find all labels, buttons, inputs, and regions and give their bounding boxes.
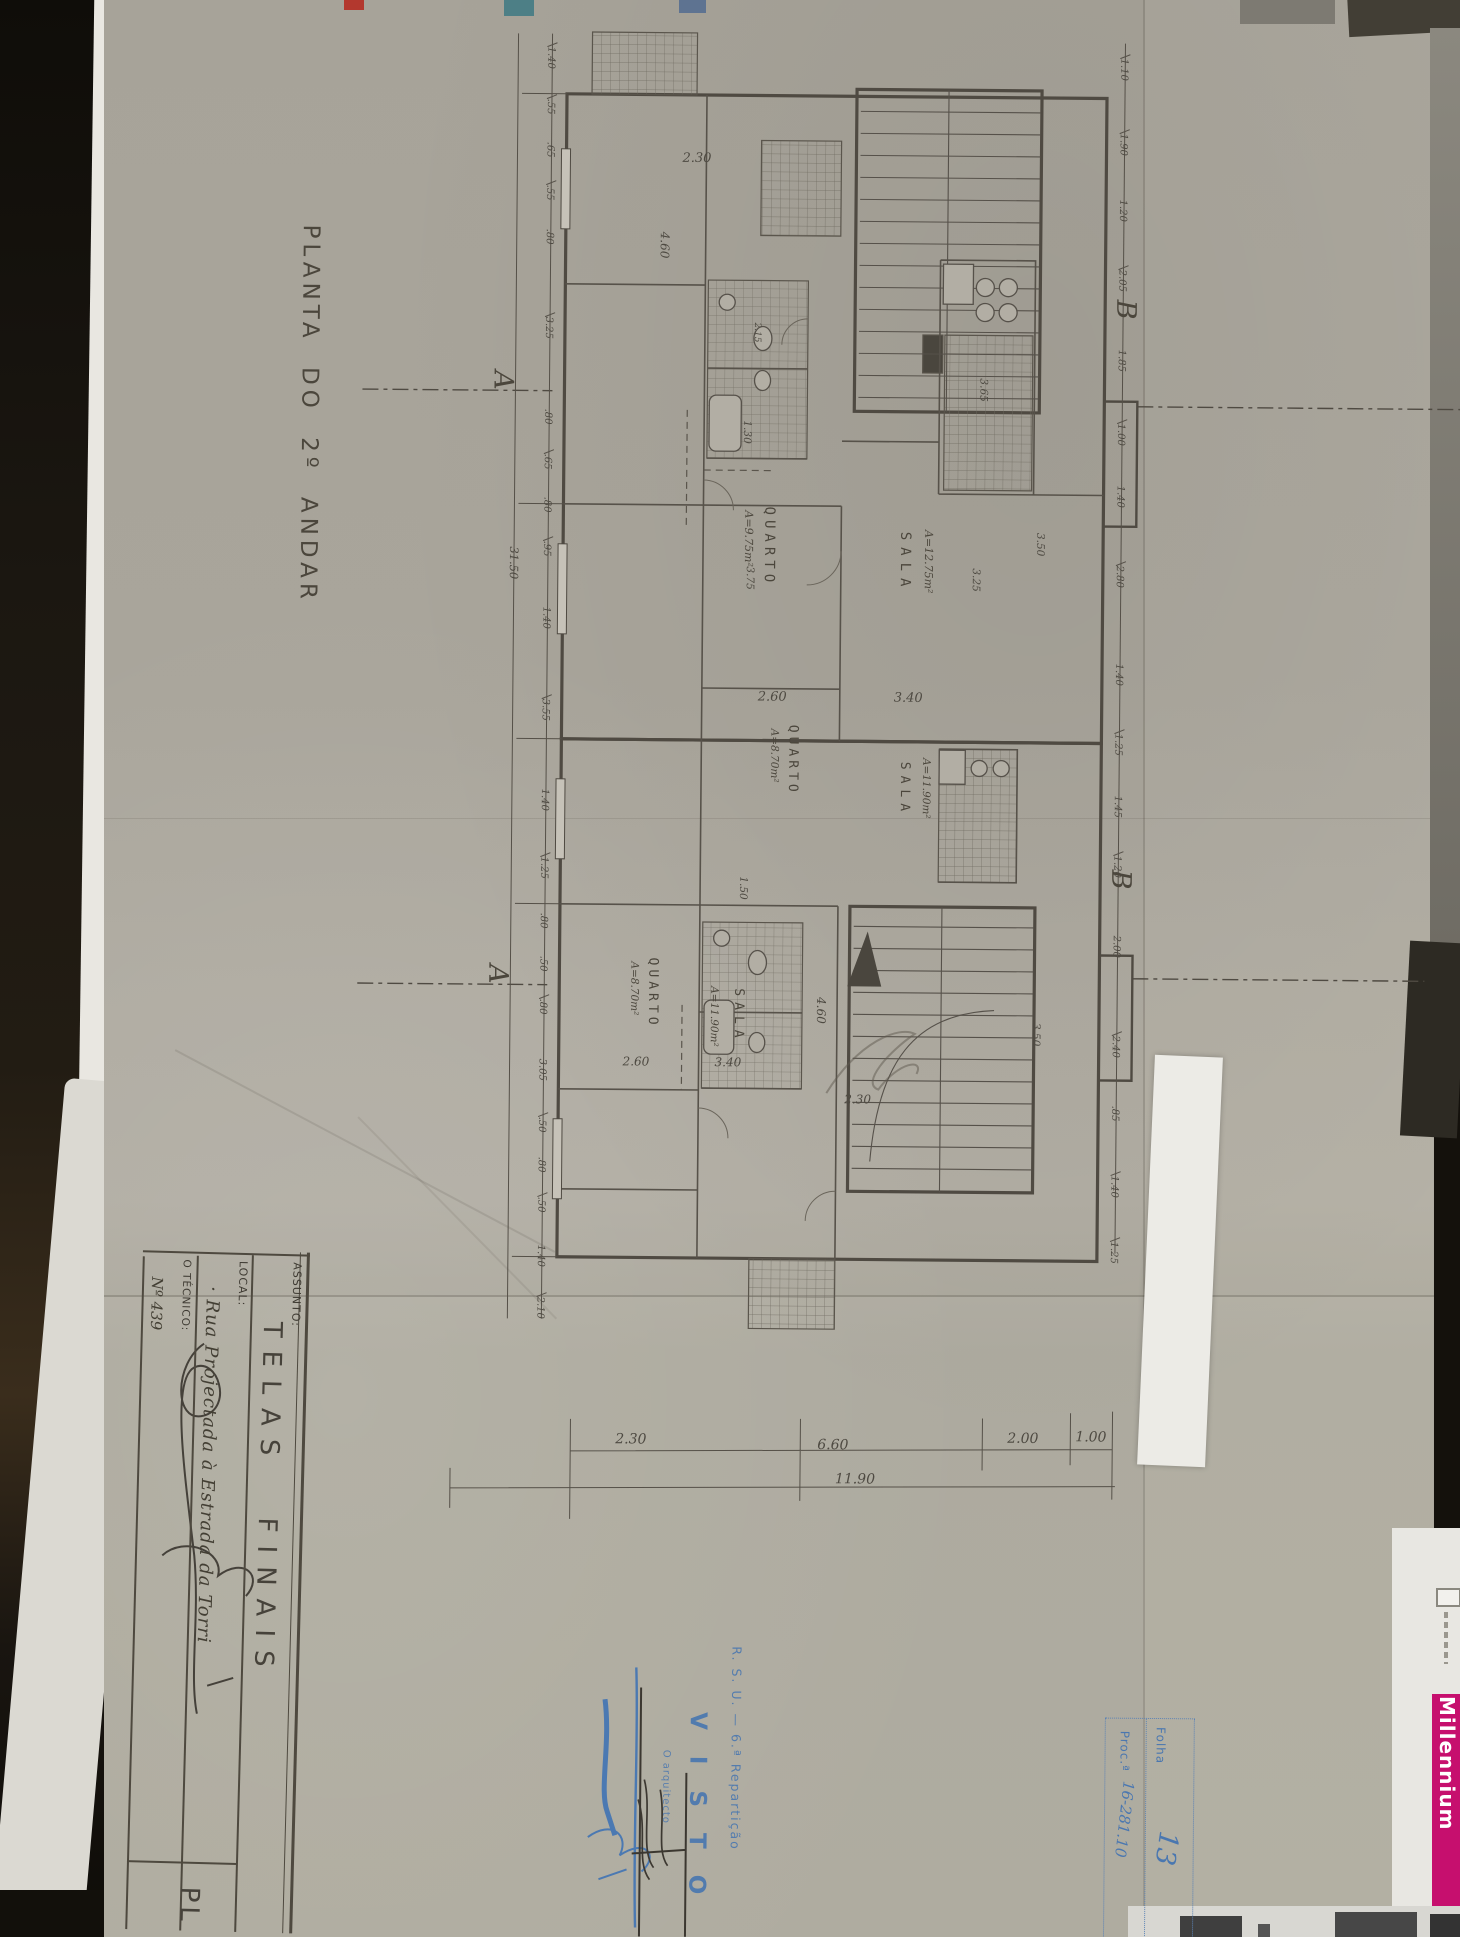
local-value: · Rua Projectada à Estrada da Torri (185, 1286, 223, 1931)
assunto-value: TELAS FINAIS (244, 1321, 287, 1822)
folha-box: Folha Proc.ª 13 16-281.10 (1103, 1718, 1195, 1937)
proc-label: Proc.ª (1117, 1731, 1131, 1772)
folha-label: Folha (1153, 1727, 1167, 1764)
tecnico-label: O TÉCNICO: (179, 1259, 193, 1331)
local-label: LOCAL: (236, 1261, 250, 1307)
titleblock-bottom-partial: PL (173, 1886, 204, 1925)
stamp-signer: O arquitecto (660, 1750, 672, 1824)
tecnico-value: Nº 439 (147, 1276, 166, 1330)
stamp-org: R. S. U. — 6.ª Repartição (727, 1646, 745, 1936)
assunto-label: ASSUNTO: (289, 1262, 304, 1327)
photo-of-floor-plan: { "title": "PLANTA DO 2º ANDAR", "title_… (0, 0, 1460, 1937)
stamp-visto: V I S T O (683, 1712, 711, 1903)
proc-value: 16-281.10 (1102, 1780, 1138, 1937)
folha-value: 13 (1148, 1829, 1184, 1868)
sheet-content: PLANTA DO 2º ANDAR (0, 0, 1460, 1937)
